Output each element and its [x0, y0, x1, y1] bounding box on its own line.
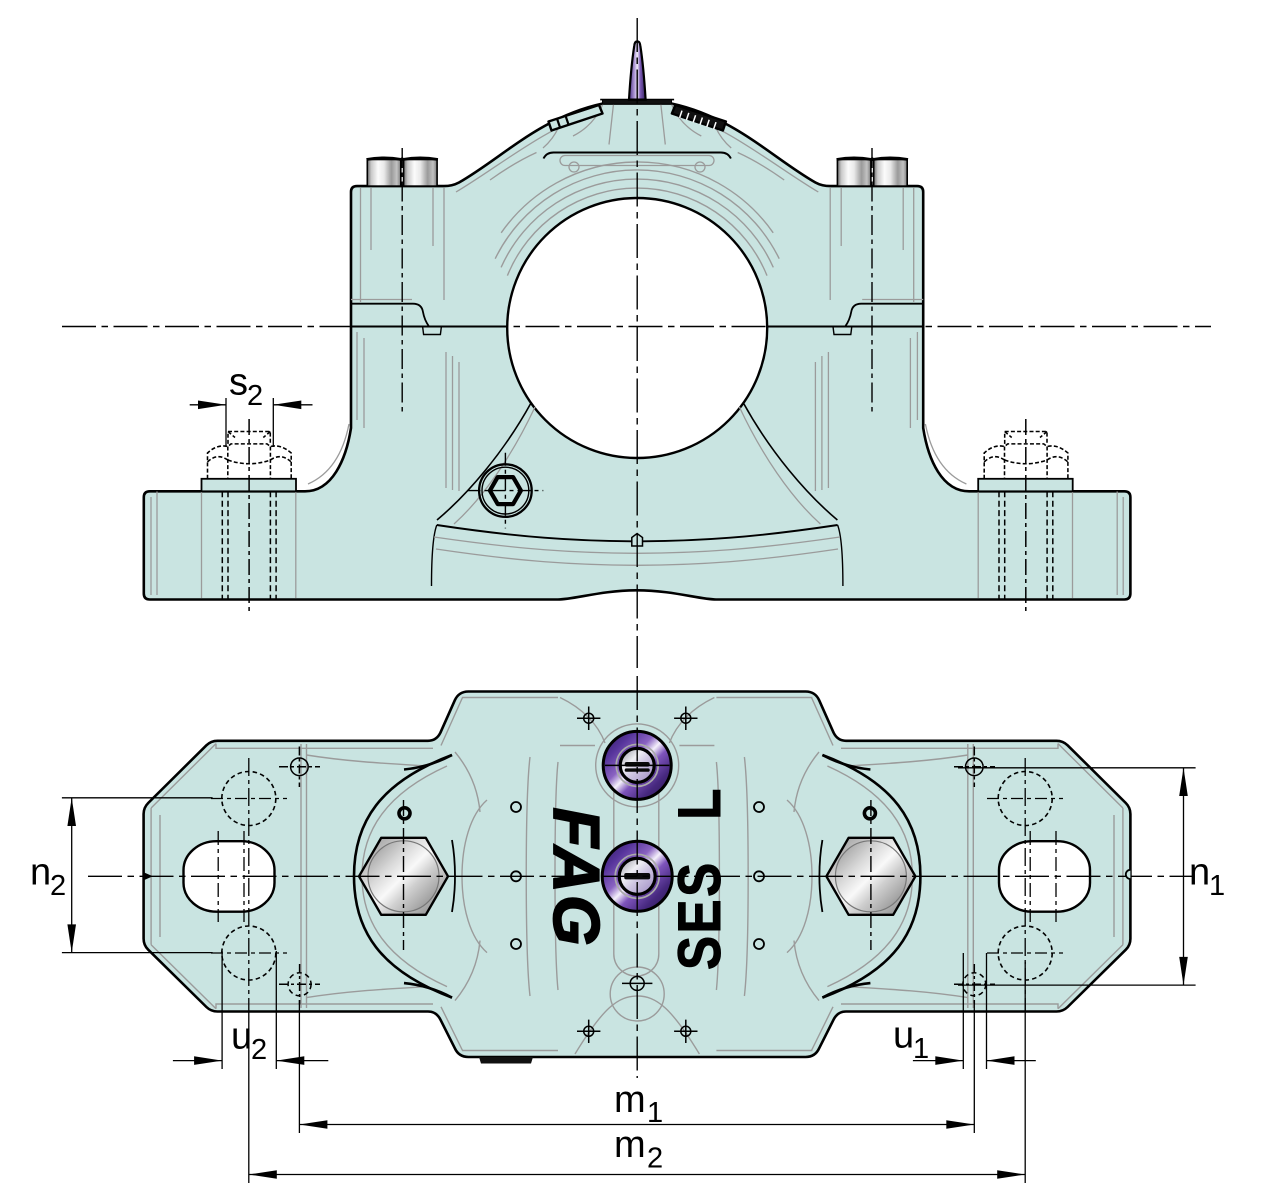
svg-text:1: 1 [1209, 870, 1225, 902]
svg-text:u: u [893, 1015, 914, 1057]
svg-text:SES L: SES L [666, 786, 733, 970]
svg-text:2: 2 [251, 1034, 267, 1066]
svg-text:1: 1 [913, 1033, 929, 1065]
svg-text:2: 2 [50, 870, 66, 902]
svg-text:m: m [614, 1124, 646, 1166]
svg-text:2: 2 [247, 380, 263, 412]
svg-text:n: n [30, 852, 51, 894]
svg-text:s: s [229, 362, 248, 404]
svg-text:n: n [1189, 852, 1210, 894]
svg-text:2: 2 [647, 1143, 663, 1175]
svg-text:m: m [614, 1079, 646, 1121]
svg-text:1: 1 [647, 1097, 663, 1129]
